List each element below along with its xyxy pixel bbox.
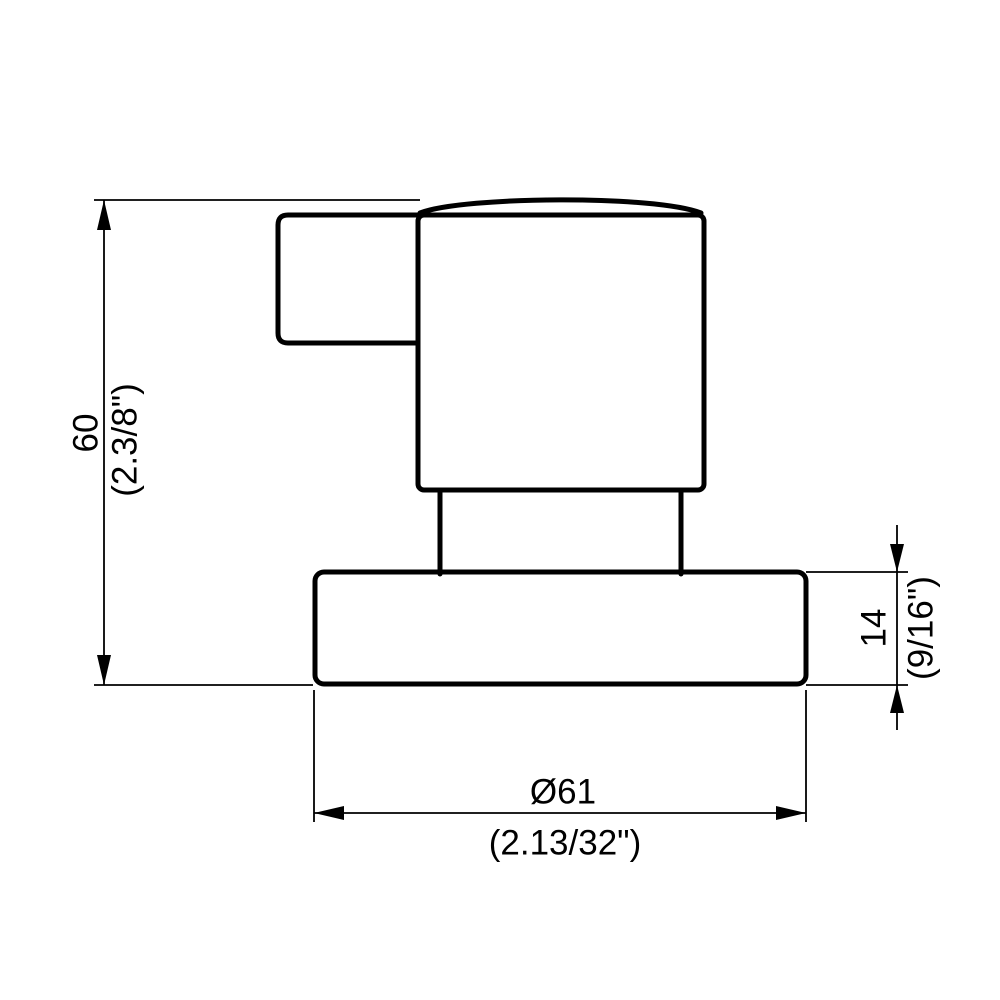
part-outline xyxy=(278,200,806,684)
diameter-metric-label: Ø61 xyxy=(530,773,596,812)
height-metric-label: 60 xyxy=(67,414,106,453)
diameter-imperial-label: (2.13/32") xyxy=(489,824,642,863)
technical-drawing-svg: 60 (2.3/8") 14 (9/16") Ø61 (2.13/32") xyxy=(0,0,1000,1000)
height-arrow-up-icon xyxy=(97,200,111,230)
valve-body xyxy=(418,215,704,490)
diameter-arrow-left-icon xyxy=(314,806,344,820)
handle-lever xyxy=(278,215,418,343)
diameter-arrow-right-icon xyxy=(776,806,806,820)
thickness-arrow-up-icon xyxy=(890,685,904,713)
height-arrow-down-icon xyxy=(97,655,111,685)
dimension-height: 60 (2.3/8") xyxy=(67,200,421,685)
drawing-canvas: 60 (2.3/8") 14 (9/16") Ø61 (2.13/32") xyxy=(0,0,1000,1000)
base-plate xyxy=(315,572,806,684)
dimension-base-diameter: Ø61 (2.13/32") xyxy=(314,690,806,863)
thickness-arrow-down-icon xyxy=(890,544,904,572)
cap-top-arc xyxy=(420,200,701,213)
height-imperial-label: (2.3/8") xyxy=(106,383,145,497)
dimension-base-thickness: 14 (9/16") xyxy=(806,525,941,730)
thickness-imperial-label: (9/16") xyxy=(902,576,941,680)
thickness-metric-label: 14 xyxy=(855,609,894,648)
